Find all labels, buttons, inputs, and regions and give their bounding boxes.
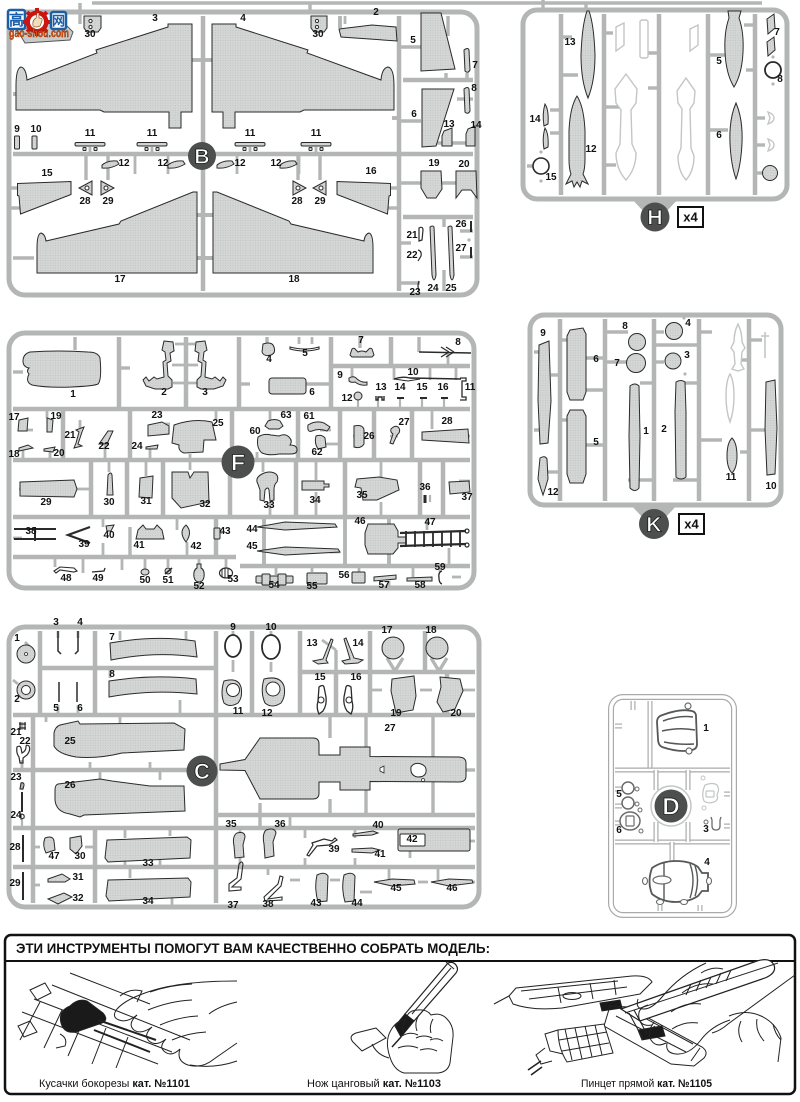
svg-text:18: 18 (288, 274, 300, 285)
svg-text:19: 19 (428, 158, 440, 169)
svg-text:28: 28 (79, 196, 91, 207)
svg-text:31: 31 (140, 496, 152, 507)
svg-text:5: 5 (410, 35, 416, 46)
svg-text:49: 49 (92, 573, 104, 584)
svg-text:37: 37 (461, 492, 473, 503)
svg-text:54: 54 (268, 580, 280, 591)
svg-text:D: D (662, 794, 679, 821)
svg-text:42: 42 (406, 834, 418, 845)
svg-text:50: 50 (139, 575, 151, 586)
svg-text:10: 10 (30, 124, 42, 135)
svg-text:25: 25 (212, 418, 224, 429)
svg-text:7: 7 (614, 358, 620, 369)
svg-text:29: 29 (314, 196, 326, 207)
svg-text:Кусачки бокорезы кат. №1101: Кусачки бокорезы кат. №1101 (39, 1078, 190, 1090)
svg-text:32: 32 (199, 499, 211, 510)
svg-text:43: 43 (310, 898, 322, 909)
svg-text:36: 36 (419, 482, 431, 493)
svg-text:6: 6 (593, 354, 599, 365)
svg-text:3: 3 (152, 13, 158, 24)
svg-text:26: 26 (64, 780, 76, 791)
svg-text:13: 13 (306, 638, 318, 649)
svg-text:13: 13 (443, 119, 455, 130)
svg-text:x4: x4 (683, 210, 698, 225)
svg-text:22: 22 (19, 736, 31, 747)
svg-text:40: 40 (103, 530, 115, 541)
svg-text:59: 59 (434, 562, 446, 573)
svg-text:6: 6 (77, 703, 83, 714)
svg-text:1: 1 (14, 633, 20, 644)
svg-text:41: 41 (374, 849, 386, 860)
svg-text:45: 45 (246, 541, 258, 552)
svg-text:11: 11 (311, 128, 322, 139)
svg-text:20: 20 (53, 448, 65, 459)
svg-text:22: 22 (406, 250, 418, 261)
svg-text:8: 8 (455, 337, 461, 348)
svg-text:30: 30 (74, 851, 86, 862)
svg-text:x4: x4 (684, 517, 699, 532)
svg-text:6: 6 (616, 825, 622, 836)
svg-text:2: 2 (373, 7, 379, 18)
svg-text:11: 11 (147, 128, 158, 139)
svg-text:9: 9 (230, 622, 236, 633)
svg-text:11: 11 (233, 706, 244, 717)
svg-text:30: 30 (84, 29, 96, 40)
svg-text:25: 25 (64, 736, 76, 747)
svg-text:61: 61 (303, 411, 315, 422)
svg-text:52: 52 (193, 581, 205, 592)
svg-text:10: 10 (765, 481, 777, 492)
svg-text:8: 8 (622, 321, 628, 332)
svg-text:46: 46 (354, 516, 366, 527)
svg-text:22: 22 (98, 441, 110, 452)
svg-text:45: 45 (390, 883, 402, 894)
svg-text:7: 7 (774, 27, 780, 38)
svg-text:14: 14 (394, 382, 406, 393)
svg-text:7: 7 (358, 335, 364, 346)
svg-text:55: 55 (306, 581, 318, 592)
svg-text:gao-shou.com: gao-shou.com (9, 28, 69, 40)
svg-text:5: 5 (53, 703, 59, 714)
svg-text:21: 21 (406, 230, 418, 241)
svg-text:47: 47 (424, 517, 436, 528)
svg-text:2: 2 (14, 694, 20, 705)
svg-text:15: 15 (416, 382, 428, 393)
svg-text:15: 15 (314, 672, 326, 683)
svg-text:39: 39 (328, 844, 340, 855)
svg-text:11: 11 (85, 128, 96, 139)
svg-text:35: 35 (225, 819, 237, 830)
svg-text:18: 18 (8, 449, 20, 460)
svg-text:23: 23 (151, 410, 163, 421)
svg-text:25: 25 (445, 283, 457, 294)
svg-text:17: 17 (8, 412, 20, 423)
svg-text:28: 28 (441, 416, 453, 427)
svg-text:12: 12 (234, 158, 246, 169)
svg-text:11: 11 (245, 128, 256, 139)
svg-text:30: 30 (312, 29, 324, 40)
svg-text:10: 10 (407, 367, 419, 378)
svg-text:10: 10 (265, 622, 277, 633)
svg-text:18: 18 (425, 625, 437, 636)
svg-text:3: 3 (202, 387, 208, 398)
svg-text:15: 15 (545, 172, 557, 183)
svg-text:44: 44 (246, 524, 258, 535)
svg-text:43: 43 (219, 526, 231, 537)
svg-text:44: 44 (351, 898, 363, 909)
svg-text:48: 48 (60, 573, 72, 584)
svg-text:15: 15 (41, 168, 53, 179)
svg-text:8: 8 (777, 74, 783, 85)
svg-text:3: 3 (53, 617, 59, 628)
svg-text:12: 12 (261, 708, 273, 719)
svg-text:8: 8 (471, 83, 477, 94)
svg-text:2: 2 (661, 424, 667, 435)
svg-text:11: 11 (726, 472, 737, 483)
svg-text:12: 12 (157, 158, 169, 169)
svg-text:9: 9 (337, 370, 343, 381)
svg-text:62: 62 (311, 447, 323, 458)
svg-text:21: 21 (64, 430, 76, 441)
svg-text:B: B (194, 146, 209, 169)
svg-text:高: 高 (9, 11, 24, 29)
svg-text:47: 47 (48, 851, 60, 862)
svg-text:60: 60 (249, 426, 261, 437)
svg-text:6: 6 (411, 109, 417, 120)
svg-text:C: C (194, 759, 210, 784)
svg-text:17: 17 (381, 625, 393, 636)
svg-text:28: 28 (291, 196, 303, 207)
svg-text:4: 4 (77, 617, 83, 628)
svg-text:40: 40 (372, 820, 384, 831)
svg-text:1: 1 (643, 426, 649, 437)
svg-text:23: 23 (409, 287, 421, 298)
svg-text:7: 7 (472, 60, 478, 71)
svg-text:Нож цанговый кат. №1103: Нож цанговый кат. №1103 (307, 1078, 441, 1090)
svg-text:4: 4 (266, 354, 272, 365)
svg-text:33: 33 (263, 500, 275, 511)
svg-text:53: 53 (227, 574, 239, 585)
svg-text:12: 12 (341, 393, 353, 404)
svg-text:ЭТИ ИНСТРУМЕНТЫ ПОМОГУТ ВАМ КА: ЭТИ ИНСТРУМЕНТЫ ПОМОГУТ ВАМ КАЧЕСТВЕННО … (16, 940, 490, 956)
svg-text:14: 14 (529, 114, 541, 125)
svg-text:51: 51 (162, 575, 174, 586)
svg-text:16: 16 (437, 382, 449, 393)
svg-text:20: 20 (450, 708, 462, 719)
svg-text:38: 38 (25, 526, 37, 537)
svg-text:57: 57 (378, 580, 390, 591)
svg-text:20: 20 (458, 159, 470, 170)
svg-text:11: 11 (465, 382, 476, 393)
svg-text:34: 34 (309, 495, 321, 506)
svg-text:14: 14 (352, 638, 364, 649)
svg-text:12: 12 (585, 144, 597, 155)
svg-text:29: 29 (102, 196, 114, 207)
svg-text:32: 32 (72, 893, 84, 904)
svg-text:5: 5 (593, 437, 599, 448)
svg-text:6: 6 (716, 130, 722, 141)
svg-text:12: 12 (270, 158, 282, 169)
svg-text:3: 3 (703, 824, 709, 835)
svg-text:63: 63 (280, 410, 292, 421)
svg-text:42: 42 (190, 541, 202, 552)
svg-text:27: 27 (398, 417, 410, 428)
svg-text:41: 41 (133, 540, 145, 551)
svg-text:24: 24 (131, 441, 143, 452)
svg-text:1: 1 (703, 723, 709, 734)
svg-text:16: 16 (350, 672, 362, 683)
svg-text:23: 23 (10, 772, 22, 783)
svg-text:13: 13 (564, 37, 576, 48)
svg-text:30: 30 (103, 497, 115, 508)
svg-text:35: 35 (356, 490, 368, 501)
svg-text:29: 29 (40, 497, 52, 508)
svg-text:16: 16 (365, 166, 377, 177)
svg-text:13: 13 (375, 382, 387, 393)
svg-text:1: 1 (70, 389, 76, 400)
svg-text:8: 8 (109, 669, 115, 680)
svg-text:7: 7 (109, 632, 115, 643)
svg-text:19: 19 (390, 708, 402, 719)
svg-text:24: 24 (10, 810, 22, 821)
svg-text:F: F (231, 449, 245, 475)
svg-text:26: 26 (455, 219, 467, 230)
svg-text:26: 26 (363, 431, 375, 442)
svg-text:12: 12 (118, 158, 130, 169)
svg-text:38: 38 (262, 899, 274, 910)
svg-text:24: 24 (427, 283, 439, 294)
svg-text:33: 33 (142, 858, 154, 869)
svg-text:27: 27 (455, 243, 467, 254)
svg-text:17: 17 (114, 274, 126, 285)
svg-text:39: 39 (78, 539, 90, 550)
svg-text:3: 3 (684, 350, 690, 361)
svg-text:Пинцет прямой кат. №1105: Пинцет прямой кат. №1105 (581, 1078, 712, 1090)
svg-text:29: 29 (9, 878, 21, 889)
svg-text:28: 28 (9, 842, 21, 853)
svg-text:56: 56 (338, 570, 350, 581)
svg-text:H: H (647, 207, 662, 230)
svg-text:31: 31 (72, 872, 84, 883)
svg-text:37: 37 (227, 900, 239, 911)
svg-text:4: 4 (704, 857, 710, 868)
svg-text:9: 9 (540, 328, 546, 339)
svg-text:14: 14 (470, 120, 482, 131)
svg-text:19: 19 (50, 411, 62, 422)
svg-text:12: 12 (547, 487, 559, 498)
svg-text:36: 36 (274, 819, 286, 830)
svg-text:5: 5 (616, 789, 622, 800)
svg-text:5: 5 (302, 348, 308, 359)
svg-text:27: 27 (384, 723, 396, 734)
svg-text:K: K (646, 514, 661, 537)
svg-text:34: 34 (142, 896, 154, 907)
svg-text:58: 58 (414, 580, 426, 591)
svg-text:4: 4 (685, 318, 691, 329)
svg-text:6: 6 (309, 387, 315, 398)
svg-text:46: 46 (446, 883, 458, 894)
svg-text:9: 9 (14, 124, 20, 135)
svg-text:5: 5 (716, 56, 722, 67)
svg-text:4: 4 (240, 13, 246, 24)
svg-text:网: 网 (52, 14, 65, 29)
svg-text:2: 2 (161, 387, 167, 398)
